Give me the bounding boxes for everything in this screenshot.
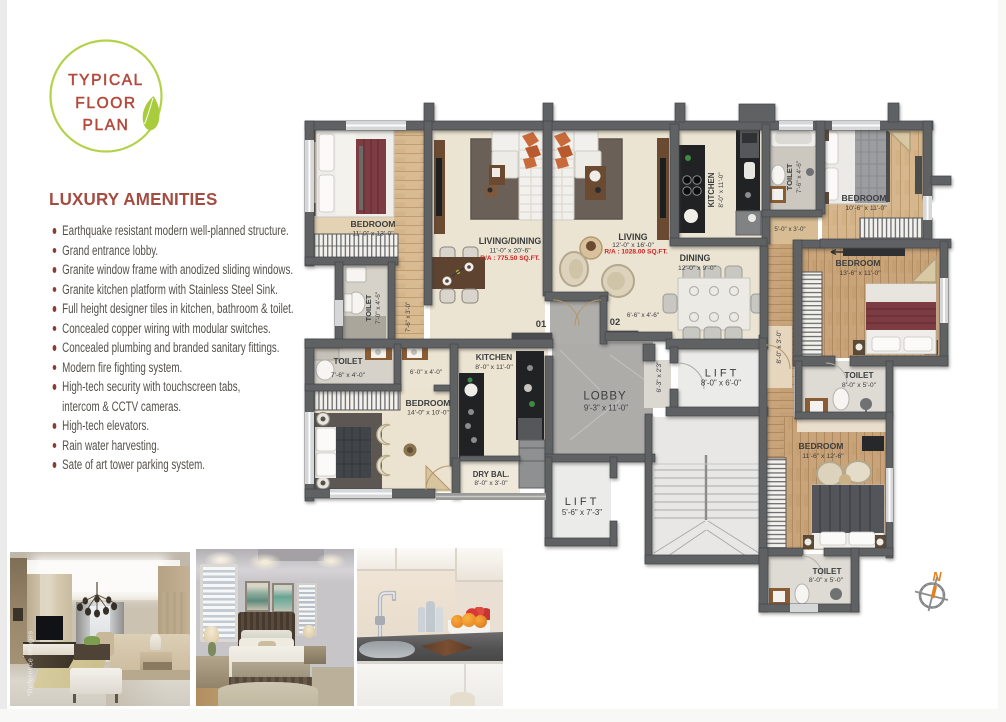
svg-text:8'-0" x 3'-0": 8'-0" x 3'-0" [474,480,508,487]
svg-text:8'-0" x 6'-0": 8'-0" x 6'-0" [701,379,741,388]
svg-text:7'-6" x 4'-0": 7'-6" x 4'-0" [331,372,366,379]
svg-text:LIFT: LIFT [565,496,600,508]
svg-text:02: 02 [610,316,620,327]
svg-text:BEDROOM: BEDROOM [836,258,881,268]
svg-text:R/A : 1028.00 SQ.FT.: R/A : 1028.00 SQ.FT. [604,249,667,256]
svg-text:8'-0" x 5'-0": 8'-0" x 5'-0" [809,577,844,584]
svg-text:TOILET: TOILET [364,294,373,321]
svg-text:01: 01 [536,318,546,329]
svg-text:TOILET: TOILET [785,163,794,190]
svg-text:6'-3" x 2'3": 6'-3" x 2'3" [656,361,663,393]
svg-text:LIVING: LIVING [618,232,647,242]
svg-text:7'-6" x 3'-0": 7'-6" x 3'-0" [406,302,412,332]
svg-text:TOILET: TOILET [334,357,363,366]
svg-text:8'-0" x 5'-0": 8'-0" x 5'-0" [842,382,877,389]
svg-text:7'-6" x 4'-6": 7'-6" x 4'-6" [796,161,803,193]
svg-text:11'-0" x 13'-0": 11'-0" x 13'-0" [352,231,394,238]
svg-text:LIVING/DINING: LIVING/DINING [479,236,542,246]
svg-text:11'-6" x 12'-6": 11'-6" x 12'-6" [802,453,844,460]
svg-text:BEDROOM: BEDROOM [406,398,451,408]
svg-text:13'-6" x 11'-0": 13'-6" x 11'-0" [839,270,881,277]
svg-text:N: N [932,570,942,584]
svg-text:BEDROOM: BEDROOM [842,193,887,203]
svg-text:8'-0" x 11'-0": 8'-0" x 11'-0" [718,172,725,207]
svg-text:TOILET: TOILET [845,371,874,380]
svg-text:11'-0" x 20'-6": 11'-0" x 20'-6" [489,248,531,255]
svg-text:12'-0" x 9'-0": 12'-0" x 9'-0" [678,265,717,272]
svg-text:DINING: DINING [680,253,711,263]
svg-text:KITCHEN: KITCHEN [707,172,716,207]
svg-text:14'-0" x 10'-0": 14'-0" x 10'-0" [407,410,449,417]
svg-text:6'-0" x 4'-0": 6'-0" x 4'-0" [410,369,442,376]
svg-text:9'-3" x 11'-0": 9'-3" x 11'-0" [584,404,628,413]
svg-text:8'-0" x 3'-0": 8'-0" x 3'-0" [776,330,783,364]
svg-text:8'-0" x 11'-0": 8'-0" x 11'-0" [475,364,513,371]
svg-text:5'-0" x 3'-0": 5'-0" x 3'-0" [774,226,805,233]
svg-text:6'-6" x 4'-6": 6'-6" x 4'-6" [627,312,659,319]
svg-text:TOILET: TOILET [813,567,842,576]
svg-text:7'-0" x 4'-6": 7'-0" x 4'-6" [375,292,382,324]
svg-text:BEDROOM: BEDROOM [351,219,396,229]
svg-text:R/A : 775.50 SQ.FT.: R/A : 775.50 SQ.FT. [480,255,540,262]
svg-text:LOBBY: LOBBY [583,391,626,403]
svg-text:DRY BAL.: DRY BAL. [473,470,509,479]
svg-text:10'-6" x 11'-0": 10'-6" x 11'-0" [845,205,887,212]
svg-text:KITCHEN: KITCHEN [476,353,512,362]
svg-text:BEDROOM: BEDROOM [799,441,844,451]
svg-text:5'-6" x 7'-3": 5'-6" x 7'-3" [562,508,602,517]
